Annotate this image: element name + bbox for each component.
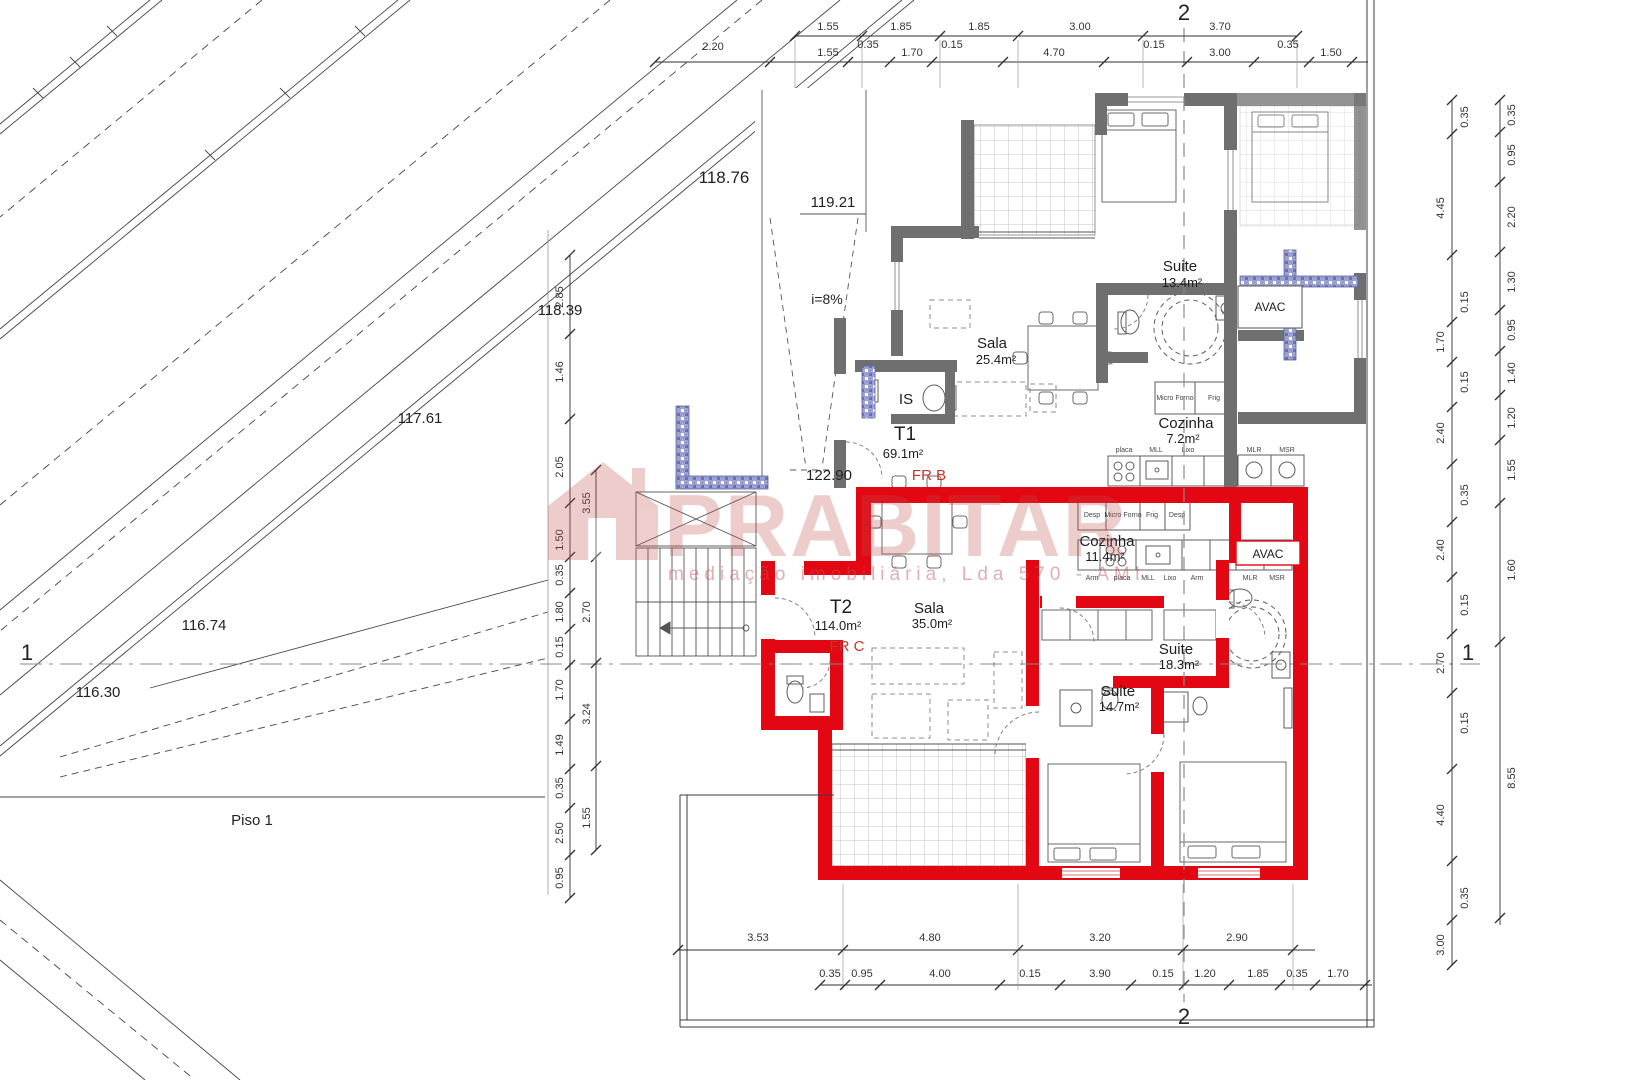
dim-label: 2.70 <box>1435 652 1447 673</box>
appliance-label: Micro Forno <box>1156 395 1193 402</box>
dim-label: 0.15 <box>1459 712 1471 733</box>
elevation-118-39: 118.39 <box>538 302 583 319</box>
dim-label: 0.35 <box>554 564 566 585</box>
dim-label: 1.70 <box>901 47 922 59</box>
dim-label: 0.35 <box>1277 39 1298 51</box>
dim-label: 0.35 <box>1459 106 1471 127</box>
dim-label: 1.85 <box>890 21 911 33</box>
dim-label: 0.35 <box>1459 484 1471 505</box>
dim-label: 0.15 <box>1143 39 1164 51</box>
unit-t1-code: T1 <box>894 424 916 445</box>
dim-label: 0.15 <box>1459 594 1471 615</box>
room-cozinha1-name: Cozinha <box>1158 415 1214 432</box>
room-suite2-name: Suite <box>1159 641 1193 658</box>
dim-label: 0.35 <box>1286 968 1307 980</box>
section-marker-2-top: 2 <box>1178 0 1190 25</box>
elevation-118-76: 118.76 <box>699 168 750 187</box>
dim-label: 1.70 <box>554 679 566 700</box>
dim-label: 1.20 <box>1194 968 1215 980</box>
dim-label: 0.15 <box>1459 371 1471 392</box>
dim-label: 1.85 <box>968 21 989 33</box>
room-avac1-label: AVAC <box>1255 300 1286 314</box>
dim-label: 1.49 <box>554 734 566 755</box>
dim-label: 3.70 <box>1209 21 1230 33</box>
dim-label: 4.40 <box>1435 804 1447 825</box>
counter-label: Lixo <box>1164 575 1177 582</box>
elevation-119-21: 119.21 <box>811 194 856 211</box>
dimension-labels-bottom: 3.53 4.80 3.20 2.90 0.35 0.95 4.00 0.15 … <box>747 932 1348 980</box>
watermark-brand: PRABITAR <box>664 476 1128 575</box>
counter-label: MLR <box>1247 447 1262 454</box>
floor-label: Piso 1 <box>231 812 273 829</box>
dim-label: 3.24 <box>581 703 593 724</box>
dim-label: 4.80 <box>919 932 940 944</box>
dim-label: 1.55 <box>817 21 838 33</box>
counter-label: MSR <box>1279 447 1295 454</box>
dim-label: 0.35 <box>857 39 878 51</box>
counter-label: Arm <box>1191 575 1204 582</box>
floor-plan-page: Micro Forno Frig placa MLL Lixo MLR MSR … <box>0 0 1644 1080</box>
appliance-label: Frig <box>1208 395 1220 402</box>
ramp-slope-label: i=8% <box>811 291 843 307</box>
dim-label: 2.90 <box>1226 932 1247 944</box>
dim-label: 1.85 <box>1247 968 1268 980</box>
dim-label: 0.95 <box>554 867 566 888</box>
counter-label: MSR <box>1269 575 1285 582</box>
room-suite3-name: Suite <box>1101 683 1135 700</box>
elevation-116-74: 116.74 <box>182 617 227 634</box>
elevation-117-61: 117.61 <box>398 410 443 427</box>
dim-label: 3.90 <box>1089 968 1110 980</box>
dim-label: 0.35 <box>819 968 840 980</box>
dim-label: 1.70 <box>1435 331 1447 352</box>
dim-label: 0.95 <box>851 968 872 980</box>
dim-label: 8.55 <box>1506 767 1518 788</box>
room-is-label: IS <box>899 391 913 408</box>
dim-label: 1.80 <box>554 601 566 622</box>
room-sala1-area: 25.4m² <box>976 352 1017 367</box>
counter-label: MLR <box>1243 575 1258 582</box>
room-cozinha1-area: 7.2m² <box>1166 431 1200 446</box>
dim-label: 0.15 <box>941 39 962 51</box>
dim-label: 0.15 <box>1459 291 1471 312</box>
dim-label: 0.15 <box>1152 968 1173 980</box>
dim-label: 1.60 <box>1506 559 1518 580</box>
dim-label: 1.50 <box>1320 47 1341 59</box>
unit-t2-code: T2 <box>830 597 852 618</box>
appliance-label: Desp <box>1169 512 1185 519</box>
dim-label: 0.15 <box>1019 968 1040 980</box>
dim-label: 2.40 <box>1435 539 1447 560</box>
room-suite2-area: 18.3m² <box>1159 657 1200 672</box>
appliance-label: Frig <box>1146 512 1158 519</box>
dim-label: 0.95 <box>1506 319 1518 340</box>
dim-label: 3.00 <box>1069 21 1090 33</box>
unit-t2-area: 114.0m² <box>815 618 862 633</box>
dim-label: 1.40 <box>1506 362 1518 383</box>
room-sala1-name: Sala <box>977 335 1008 352</box>
room-suite1-area: 13.4m² <box>1162 275 1203 290</box>
room-suite1-name: Suite <box>1163 258 1197 275</box>
dim-label: 3.53 <box>747 932 768 944</box>
dim-label: 1.46 <box>554 361 566 382</box>
dim-label: 3.00 <box>1435 934 1447 955</box>
dim-label: 4.00 <box>929 968 950 980</box>
dim-label: 1.20 <box>1506 407 1518 428</box>
section-marker-1-left: 1 <box>21 640 33 665</box>
unit-t2-fraction: FR C <box>830 638 865 655</box>
dim-label: 1.55 <box>1506 459 1518 480</box>
dim-label: 2.50 <box>554 822 566 843</box>
dim-label: 4.45 <box>1435 197 1447 218</box>
section-marker-2-bottom: 2 <box>1178 1004 1190 1029</box>
dimension-labels-left: 2.85 1.46 2.05 1.50 0.35 1.80 0.15 1.70 … <box>554 286 593 888</box>
dim-label: 0.35 <box>554 777 566 798</box>
room-avac2-label: AVAC <box>1253 547 1284 561</box>
dim-label: 1.55 <box>817 47 838 59</box>
dim-label: 2.40 <box>1435 422 1447 443</box>
counter-label: placa <box>1116 447 1133 454</box>
dim-label: 4.70 <box>1043 47 1064 59</box>
dim-label: 1.55 <box>581 807 593 828</box>
dimension-labels-right: 4.45 1.70 2.40 2.40 2.70 4.40 3.00 0.35 … <box>1435 104 1518 955</box>
dim-label: 2.20 <box>1506 206 1518 227</box>
dim-label: 0.15 <box>554 636 566 657</box>
room-sala2-name: Sala <box>914 600 945 617</box>
dim-label: 0.35 <box>1506 104 1518 125</box>
dim-label: 3.00 <box>1209 47 1230 59</box>
dim-label: 1.30 <box>1506 271 1518 292</box>
room-suite3-area: 14.7m² <box>1099 699 1140 714</box>
dimension-labels-top: 1.55 1.85 1.85 3.00 3.70 2.20 1.55 0.35 … <box>702 21 1341 59</box>
dim-label: 0.95 <box>1506 144 1518 165</box>
dim-label: 1.70 <box>1327 968 1348 980</box>
counter-label: MLL <box>1149 447 1163 454</box>
dim-label: 3.20 <box>1089 932 1110 944</box>
section-marker-1-right: 1 <box>1462 640 1474 665</box>
elevation-116-30: 116.30 <box>76 684 121 701</box>
floor-plan-drawing: Micro Forno Frig placa MLL Lixo MLR MSR … <box>0 0 1644 1080</box>
dim-label: 2.05 <box>554 456 566 477</box>
dim-label: 2.20 <box>702 41 723 53</box>
watermark-subtitle: mediação imobiliária, Lda 570 - AMI <box>668 564 1145 585</box>
unit-t1-area: 69.1m² <box>883 446 924 461</box>
dim-label: 0.35 <box>1459 887 1471 908</box>
dim-label: 2.70 <box>581 601 593 622</box>
room-sala2-area: 35.0m² <box>912 616 953 631</box>
